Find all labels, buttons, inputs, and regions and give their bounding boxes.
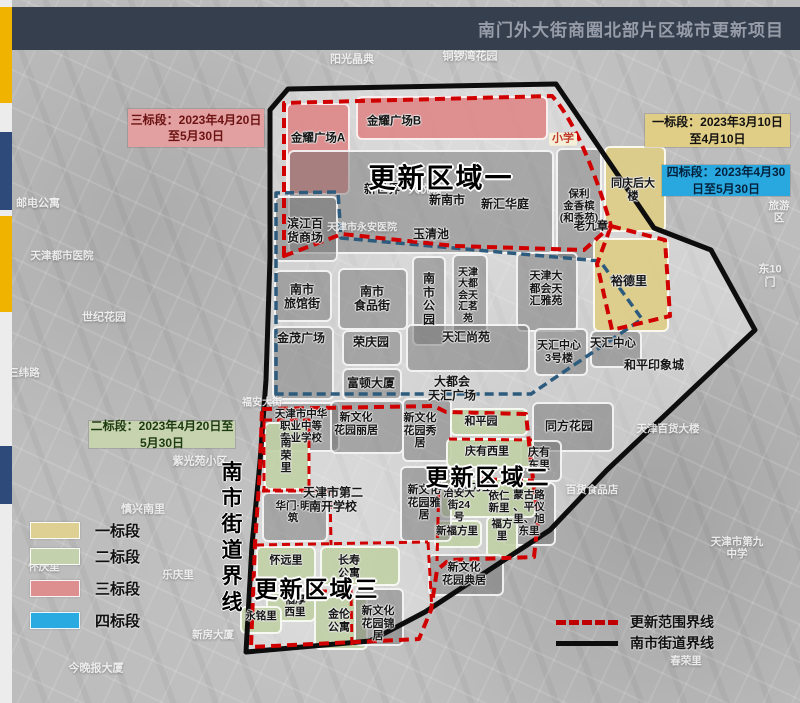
map-label: 新房大厦 <box>192 630 234 642</box>
bid1-schedule-line: 至4月10日 <box>689 131 745 147</box>
map-label: 天汇中心 <box>590 337 636 350</box>
map-label: 治安大 街24 号 <box>443 488 475 524</box>
renewal-boundary-label: 更新范围界线 <box>630 612 714 632</box>
map-label: 紫光苑小区 <box>173 456 228 469</box>
legend-label-bid-4: 四标段 <box>95 610 140 631</box>
bid2-schedule-line: 二标段：2023年4月20日至 <box>91 418 234 434</box>
map-label: 新文化 花园秀 居 <box>404 412 437 450</box>
map-label: 金茂广场 <box>277 332 325 346</box>
bid4-schedule: 四标段：2023年4月30日至5月30日 <box>662 165 790 196</box>
map-label: 南市 旅馆街 <box>284 283 320 310</box>
map-label: 蒙古路 、平仪 里、旭 东里 <box>513 490 545 538</box>
street-boundary-char: 线 <box>222 586 243 616</box>
map-label: 滨江百 货商场 <box>287 217 323 244</box>
map-label: 南 市 公 园 <box>423 273 435 328</box>
map-label: 天津市第二 南开学校 <box>303 486 363 513</box>
map-label: 永铭里 <box>245 611 277 623</box>
line-legend-item-street-boundary: 南市街道界线 <box>556 633 714 653</box>
map-label: 天汇中心 3号楼 <box>537 339 581 364</box>
map-label: 和平园 <box>465 416 498 429</box>
map-label: 天津大 都会天 汇雅苑 <box>530 270 563 308</box>
map-label: 老九章 <box>574 220 609 233</box>
map-label: 裕德里 <box>611 275 647 289</box>
legend-swatch-bid-1 <box>30 522 80 539</box>
bid3-schedule-line: 三标段：2023年4月20日 <box>131 112 262 128</box>
legend-label-bid-3: 三标段 <box>95 578 140 599</box>
map-label: 富顿大厦 <box>347 377 395 391</box>
map-label: 小学 <box>549 133 577 146</box>
map-label: 新文化 花园丽居 <box>334 411 378 436</box>
map-label: 天津 大都 会天 汇茗 苑 <box>458 268 478 325</box>
bid2-schedule-line: 5月30日 <box>140 435 184 451</box>
map-label: 怀远里 <box>270 555 303 568</box>
map-label: 荣庆园 <box>353 336 389 350</box>
left-edge-strip <box>0 0 12 703</box>
region-title: 更新区域二 <box>426 458 551 492</box>
line-legend-item-renewal-boundary: 更新范围界线 <box>556 612 714 632</box>
map-label: 世纪花园 <box>82 312 126 325</box>
legend-swatch-bid-2 <box>30 548 80 565</box>
map-label: 天津市永安医院 <box>327 222 397 233</box>
map-label: 天津市第九 中学 <box>711 537 764 561</box>
map-label: 新文化 花园锦 居 <box>362 605 395 643</box>
map-label: 百货食品店 <box>566 485 619 497</box>
accent-bar-blue-1 <box>0 132 12 210</box>
map-label: 天津都市医院 <box>31 251 94 263</box>
map-label: 乐庆里 <box>162 570 194 582</box>
map-label: 同方花园 <box>545 420 593 434</box>
legend-label-bid-1: 一标段 <box>95 520 140 541</box>
legend-swatch-bid-3 <box>30 580 80 597</box>
map-label: 金伦 公寓 <box>328 608 350 633</box>
legend-swatch-bid-4 <box>30 612 80 629</box>
map-label: 福安大街 <box>242 397 282 408</box>
map-label: 玉清池 <box>413 228 449 242</box>
street-boundary-label: 南市街道界线 <box>630 633 714 653</box>
map-label: 福方 里 <box>492 519 513 543</box>
bid4-schedule-line: 四标段：2023年4月30 <box>667 164 786 180</box>
map-label: 南 荣 里 <box>281 437 292 475</box>
map-label: 大都会 天汇广场 <box>428 375 476 402</box>
map-label: 天汇尚苑 <box>442 331 490 345</box>
map-label: 新福方里 <box>436 526 478 538</box>
bid2-schedule: 二标段：2023年4月20日至5月30日 <box>89 421 235 448</box>
legend-item-bid-1: 一标段 <box>30 520 140 541</box>
renewal-boundary-sample <box>556 620 618 625</box>
map-label: 依仁 新里 <box>489 491 510 515</box>
page-title: 南门外大街商圈北部片区城市更新项目 <box>478 16 784 41</box>
slide-header: 南门外大街商圈北部片区城市更新项目 <box>12 7 800 50</box>
map-label: 铜锣湾花园 <box>443 51 498 64</box>
map-label: 邮电公寓 <box>16 198 60 211</box>
urban-renewal-map: 金耀广场A金耀广场B新世界新南市新汇华庭玉清池保利 金香槟 (和香苑)同庆后大 … <box>0 0 800 703</box>
map-label: 新文化 花园典居 <box>442 561 486 586</box>
accent-bar-yellow-2 <box>0 216 12 312</box>
accent-bar-yellow-1 <box>0 7 12 103</box>
map-label: 今晚报大厦 <box>69 663 124 676</box>
map-label: 阳光晶典 <box>330 54 374 67</box>
map-label: 旅游区 <box>769 201 790 225</box>
map-label: 和平印象城 <box>624 359 684 373</box>
legend-item-bid-2: 二标段 <box>30 546 140 567</box>
map-label: 天津百货大楼 <box>637 424 700 436</box>
region-title: 更新区域三 <box>255 570 380 604</box>
bid3-schedule-line: 至5月30日 <box>168 128 224 144</box>
map-label: 庆有西里 <box>465 446 509 459</box>
map-label: 新汇华庭 <box>481 198 529 212</box>
legend-item-bid-3: 三标段 <box>30 578 140 599</box>
street-boundary-sample <box>556 641 618 646</box>
map-label: 三纬路 <box>8 368 40 380</box>
region-title: 更新区域一 <box>369 157 514 196</box>
map-label: 南市 食品街 <box>354 285 390 312</box>
map-label: 东10门 <box>755 263 785 288</box>
bid3-schedule: 三标段：2023年4月20日至5月30日 <box>128 109 264 147</box>
map-label: 春荣里 <box>670 656 702 668</box>
legend-label-bid-2: 二标段 <box>95 546 140 567</box>
map-label: 金耀广场B <box>367 115 421 128</box>
legend-item-bid-4: 四标段 <box>30 610 140 631</box>
map-label: 慎兴南里 <box>121 504 165 517</box>
bid1-schedule-line: 一标段：2023年3月10日 <box>652 114 783 130</box>
bid1-schedule: 一标段：2023年3月10日至4月10日 <box>645 114 790 147</box>
accent-bar-blue-2 <box>0 446 12 504</box>
map-label: 同庆后大 楼 <box>611 177 655 202</box>
bid4-schedule-line: 日至5月30日 <box>692 181 760 197</box>
map-label: 金耀广场A <box>291 132 345 145</box>
